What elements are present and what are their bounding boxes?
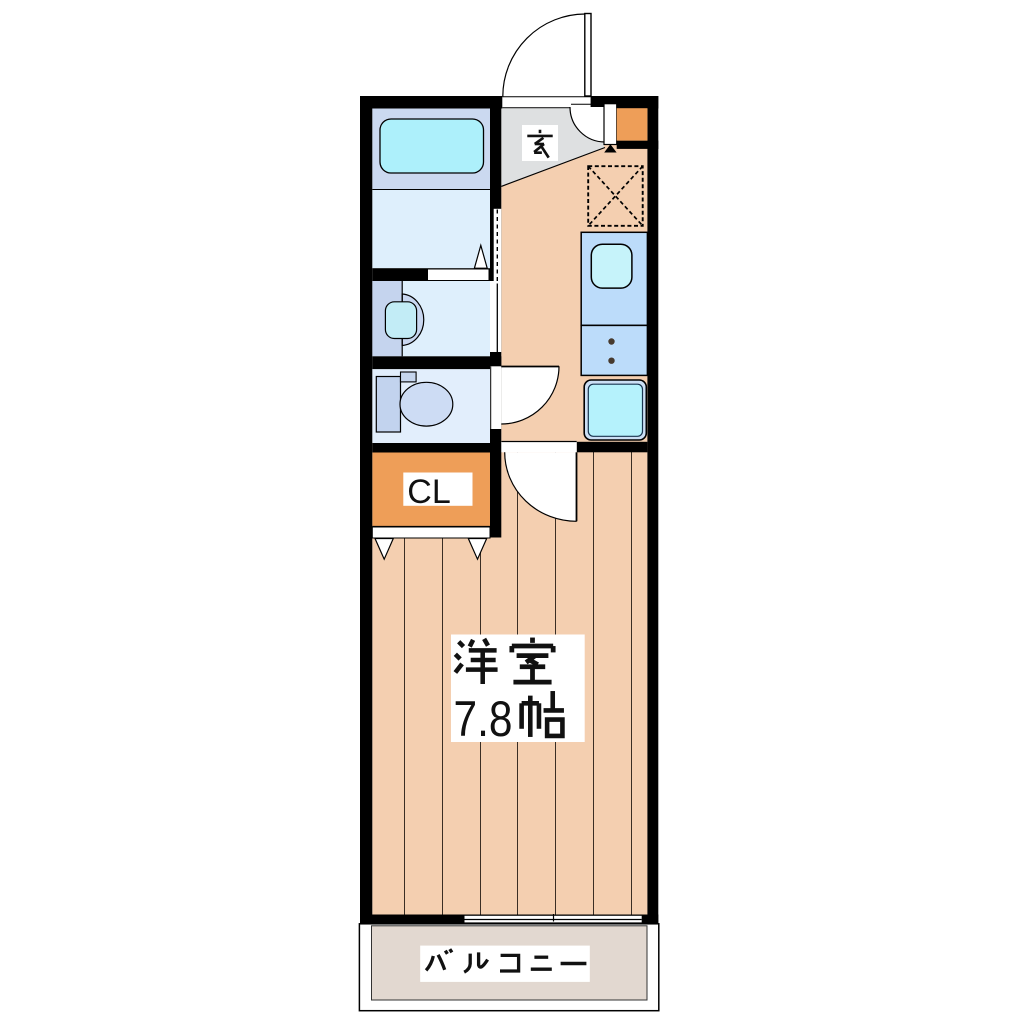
svg-text:CL: CL [407,473,450,511]
svg-text:7.8: 7.8 [454,691,513,747]
